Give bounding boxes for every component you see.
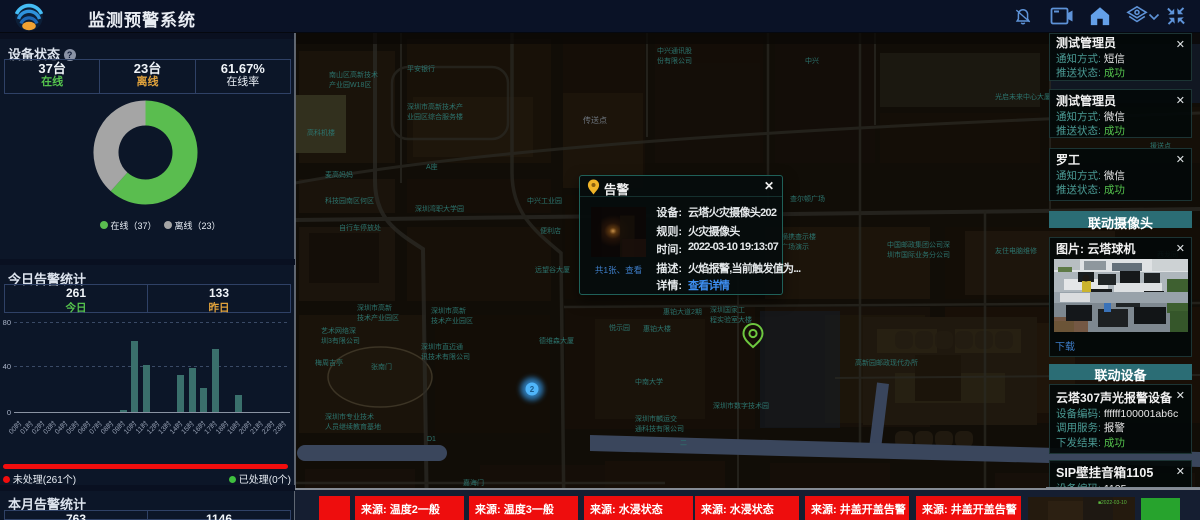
- svg-text:便利店: 便利店: [540, 226, 561, 235]
- svg-text:A座: A座: [426, 162, 438, 171]
- svg-text:远望谷大厦: 远望谷大厦: [535, 265, 570, 274]
- svg-text:张南门: 张南门: [371, 362, 392, 371]
- svg-text:科技园南区何区: 科技园南区何区: [325, 196, 374, 205]
- svg-text:讯技术有限公司: 讯技术有限公司: [421, 352, 470, 361]
- svg-text:圳市国际业务分公司: 圳市国际业务分公司: [887, 250, 950, 259]
- svg-text:深圳国家工: 深圳国家工: [710, 305, 745, 314]
- svg-text:人员继续教育基地: 人员继续教育基地: [325, 422, 381, 431]
- svg-text:南山区高新技术: 南山区高新技术: [329, 70, 378, 79]
- svg-text:技术产业园区: 技术产业园区: [431, 316, 473, 325]
- svg-text:40: 40: [3, 362, 11, 371]
- svg-text:0: 0: [7, 408, 11, 417]
- svg-text:梅周吉亭: 梅周吉亭: [315, 358, 343, 367]
- svg-text:业园区综合服务楼: 业园区综合服务楼: [407, 112, 463, 121]
- svg-text:技术产业园区: 技术产业园区: [357, 313, 399, 322]
- svg-text:2: 2: [530, 385, 535, 394]
- svg-text:程实验室大楼: 程实验室大楼: [710, 315, 752, 324]
- svg-text:麦高妈妈: 麦高妈妈: [325, 170, 353, 179]
- svg-text:深圳市高新: 深圳市高新: [357, 303, 392, 312]
- svg-text:悦示园: 悦示园: [609, 323, 630, 332]
- svg-text:深圳市麟运交: 深圳市麟运交: [635, 414, 677, 423]
- svg-text:深圳市直迈通: 深圳市直迈通: [421, 342, 463, 351]
- svg-text:深圳市高新技术产: 深圳市高新技术产: [407, 102, 463, 111]
- svg-text:自行车停放处: 自行车停放处: [339, 223, 381, 232]
- svg-text:嘉海门: 嘉海门: [463, 478, 484, 487]
- svg-text:平安银行: 平安银行: [407, 64, 435, 73]
- svg-text:中南大学: 中南大学: [635, 377, 663, 386]
- svg-text:惠铂大楼: 惠铂大楼: [643, 324, 671, 333]
- svg-text:中兴通讯股: 中兴通讯股: [657, 46, 692, 55]
- svg-text:高新园邮政现代办所: 高新园邮政现代办所: [855, 358, 918, 367]
- svg-text:高科机楼: 高科机楼: [307, 128, 335, 137]
- svg-text:份有限公司: 份有限公司: [657, 56, 692, 65]
- svg-text:中兴: 中兴: [805, 56, 819, 65]
- svg-text:■2022-03-10: ■2022-03-10: [1098, 500, 1127, 506]
- svg-text:产业园W18区: 产业园W18区: [329, 80, 371, 89]
- svg-text:深圳市高新: 深圳市高新: [431, 306, 466, 315]
- svg-text:圳3有限公司: 圳3有限公司: [321, 336, 360, 345]
- svg-text:80: 80: [3, 318, 11, 327]
- svg-text:中国邮政集团公司深: 中国邮政集团公司深: [887, 240, 950, 249]
- svg-text:传送点: 传送点: [583, 115, 607, 125]
- svg-text:深圳市数字技术园: 深圳市数字技术园: [713, 401, 769, 410]
- svg-text:查尔顿广场: 查尔顿广场: [790, 194, 825, 203]
- svg-text:广场演示: 广场演示: [781, 242, 809, 251]
- svg-text:德维森大厦: 德维森大厦: [539, 336, 574, 345]
- svg-text:横携查示楼: 横携查示楼: [781, 232, 816, 241]
- svg-text:D1: D1: [427, 436, 436, 443]
- svg-text:光启未来中心大厦: 光启未来中心大厦: [995, 92, 1051, 101]
- svg-text:中兴工业园: 中兴工业园: [527, 196, 562, 205]
- svg-text:深圳湾职大学园: 深圳湾职大学园: [415, 204, 464, 213]
- svg-text:通科技有限公司: 通科技有限公司: [635, 424, 684, 433]
- svg-text:二: 二: [680, 440, 687, 447]
- svg-text:深圳市专业技术: 深圳市专业技术: [325, 412, 374, 421]
- svg-text:友住电脑维修: 友住电脑维修: [995, 246, 1037, 255]
- svg-text:艺术网络深: 艺术网络深: [321, 326, 356, 335]
- svg-text:惠铂大道2期: 惠铂大道2期: [663, 307, 702, 316]
